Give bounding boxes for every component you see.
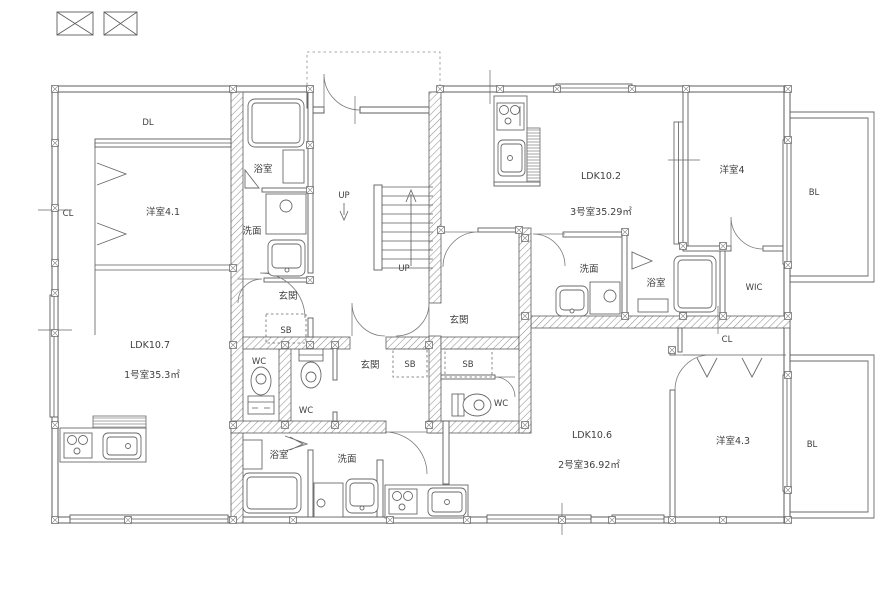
label-western-room-4: 洋室4 [719, 164, 744, 176]
label-balcony-top: BL [809, 188, 820, 198]
washstand-icon-unit2 [314, 479, 378, 517]
label-wc-unit2: WC [299, 406, 313, 416]
washstand-icon-unit3 [556, 282, 620, 316]
label-area-unit1: 1号室35.3㎡ [124, 369, 180, 381]
label-shoebox-unit1: SB [280, 326, 291, 336]
label-western-room-4-3: 洋室4.3 [716, 435, 750, 447]
balcony-bottom-right [790, 355, 874, 518]
toilet-icon-unit1 [248, 367, 274, 414]
floor-plan-drawing: DL CL 洋室4.1 浴室 洗面 玄関 SB WC LDK10.7 1号室35… [0, 0, 892, 595]
kitchen-icon-unit3 [494, 96, 540, 182]
label-ldk-unit2: LDK10.6 [572, 430, 612, 441]
kitchen-icon-unit2 [385, 485, 468, 518]
staircase [340, 185, 433, 270]
label-ldk-unit3: LDK10.2 [581, 171, 621, 182]
label-bath-unit3: 浴室 [646, 277, 665, 289]
label-closet-unit1: CL [63, 209, 74, 219]
label-washroom-unit2: 洗面 [337, 453, 356, 465]
label-washroom-unit1: 洗面 [242, 225, 261, 237]
label-washroom-unit3: 洗面 [579, 263, 598, 275]
floor-plan-page: DL CL 洋室4.1 浴室 洗面 玄関 SB WC LDK10.7 1号室35… [0, 0, 892, 595]
label-ldk-unit1: LDK10.7 [130, 340, 170, 351]
label-shoebox-unit3: SB [462, 360, 473, 370]
washstand-icon-unit1 [266, 194, 306, 276]
toilet-icon-unit2 [299, 349, 323, 388]
label-bath-unit1: 浴室 [253, 163, 272, 175]
label-stairs-up-2: UP [398, 264, 409, 274]
label-dl-balcony: DL [142, 118, 154, 128]
label-western-room-4-1: 洋室4.1 [146, 206, 180, 218]
label-walk-in-closet: WIC [746, 283, 763, 293]
balcony-top-right [790, 112, 874, 282]
label-bath-unit2: 浴室 [269, 449, 288, 461]
label-wc-unit3: WC [494, 399, 508, 409]
label-area-unit3: 3号室35.29㎡ [570, 206, 632, 218]
label-closet-unit2: CL [722, 335, 733, 345]
label-area-unit2: 2号室36.92㎡ [558, 459, 620, 471]
entrance-porch-outline [307, 52, 440, 107]
toilet-icon-unit3 [452, 394, 491, 416]
label-shoebox-unit2: SB [404, 360, 415, 370]
label-entrance-unit1: 玄関 [278, 290, 297, 302]
kitchen-icon-unit1 [60, 416, 146, 462]
meter-boxes [57, 12, 137, 35]
label-balcony-bottom: BL [807, 440, 818, 450]
label-wc-unit1: WC [252, 357, 266, 367]
label-stairs-up-1: UP [338, 191, 349, 201]
label-entrance-unit3: 玄関 [449, 314, 468, 326]
label-entrance-unit2: 玄関 [360, 359, 379, 371]
